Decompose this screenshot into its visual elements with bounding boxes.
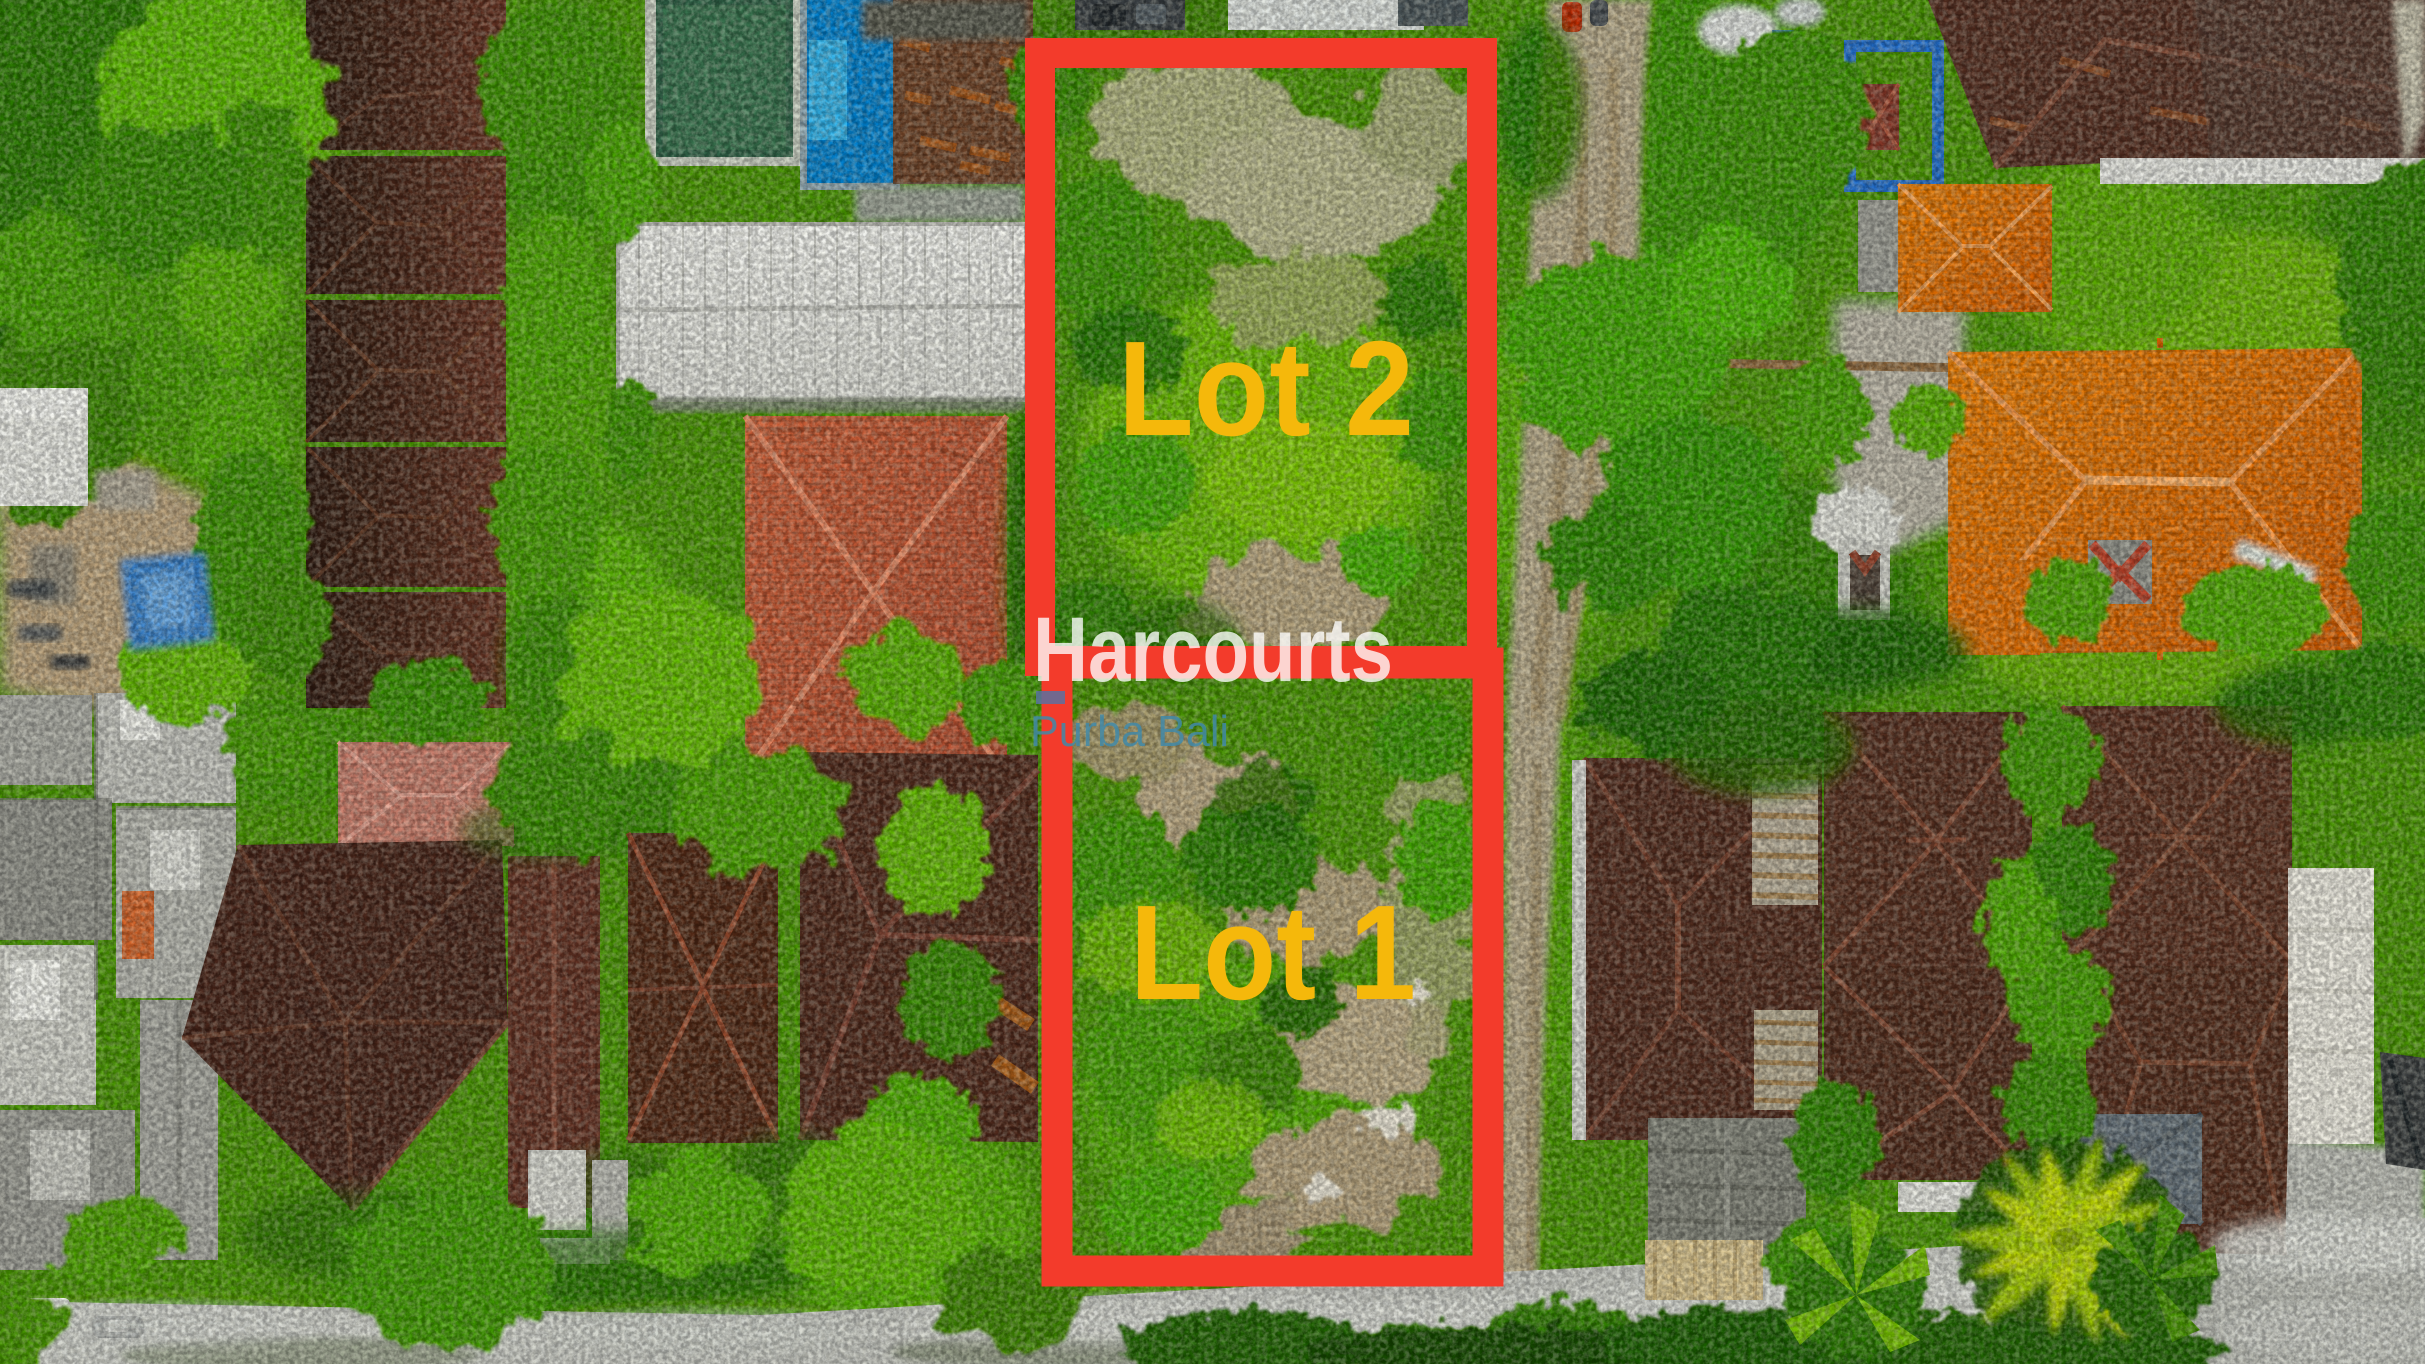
svg-text:Harcourts: Harcourts: [1033, 599, 1393, 701]
svg-text:Lot 1: Lot 1: [1130, 877, 1416, 1028]
svg-text:Purba Bali: Purba Bali: [1030, 707, 1229, 756]
svg-text:Lot 2: Lot 2: [1118, 313, 1414, 464]
